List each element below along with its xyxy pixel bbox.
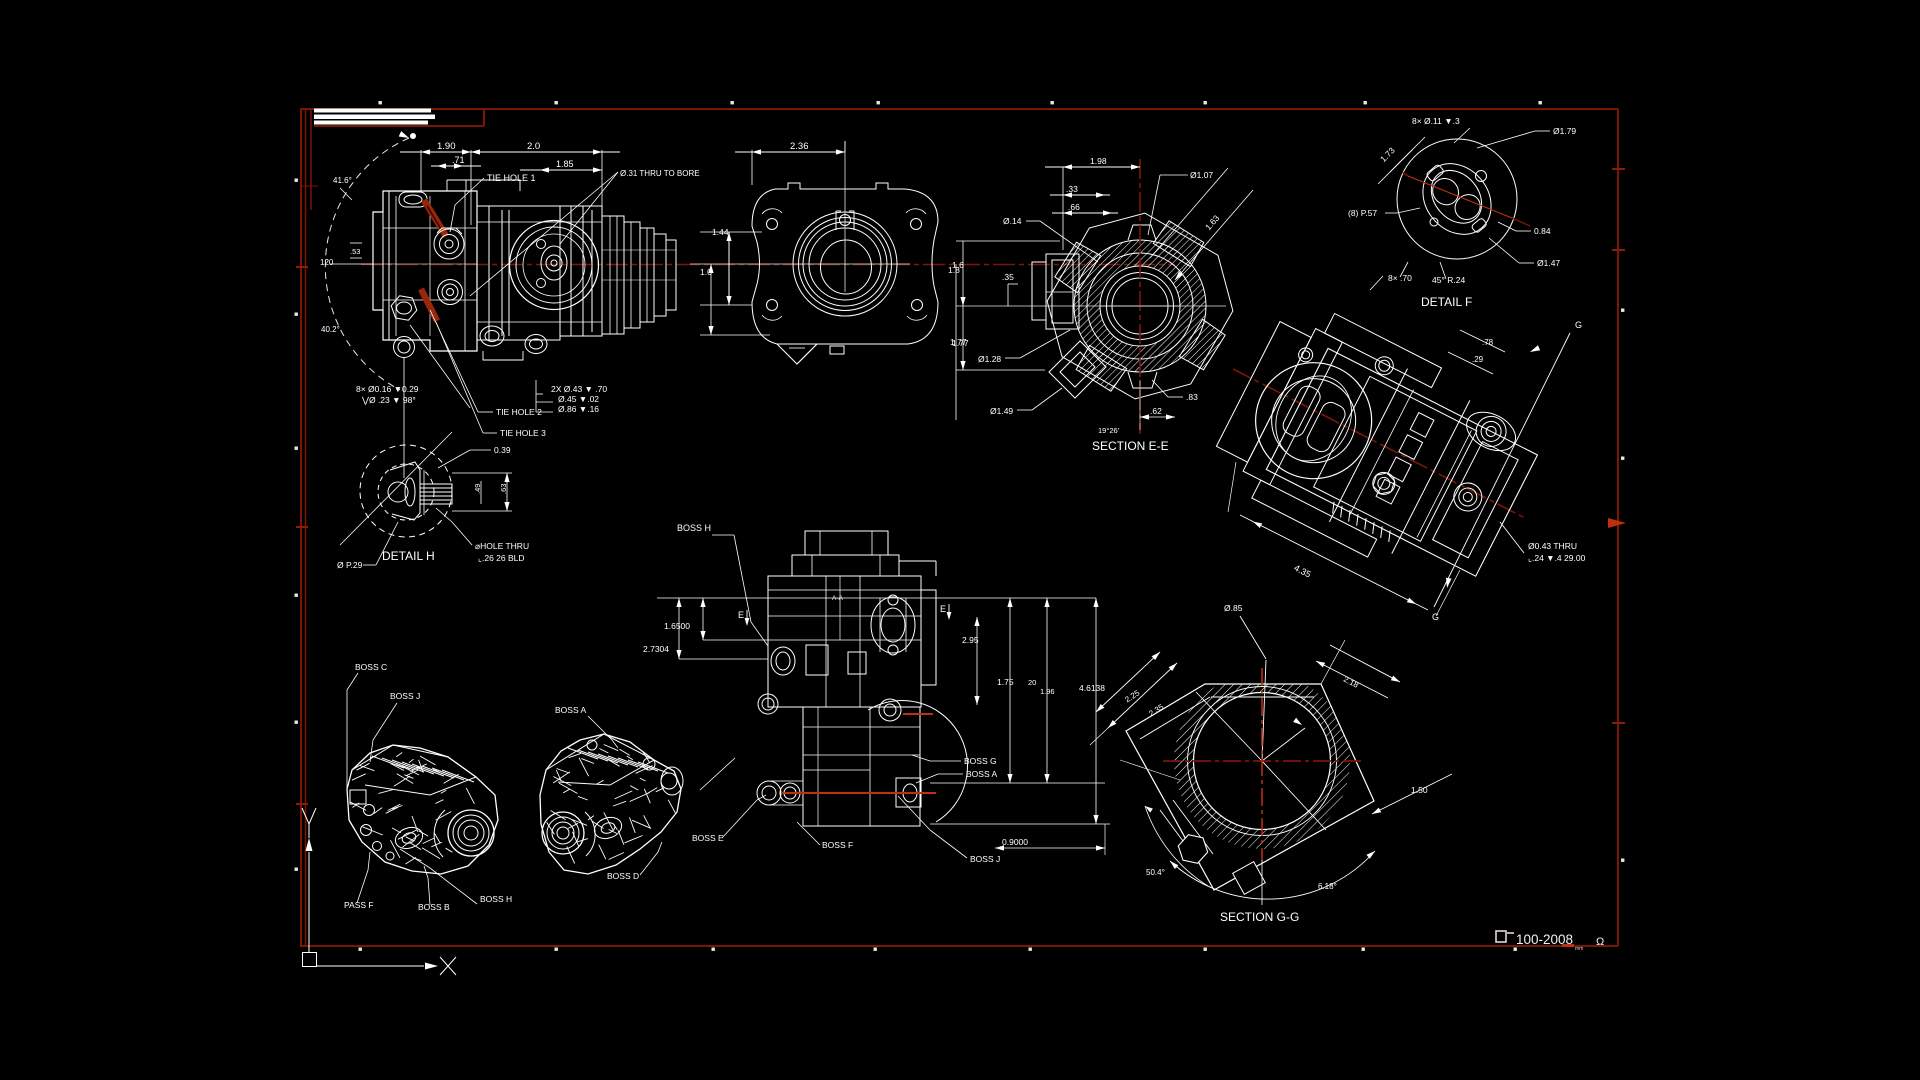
svg-text:Ø.31 THRU TO BORE: Ø.31 THRU TO BORE bbox=[620, 169, 700, 178]
svg-text:Ø.86 ▼.16: Ø.86 ▼.16 bbox=[558, 404, 599, 414]
svg-text:50.4°: 50.4° bbox=[1146, 868, 1165, 877]
svg-text:1.90: 1.90 bbox=[437, 141, 456, 152]
svg-text:.66: .66 bbox=[1068, 202, 1080, 212]
svg-text:.49: .49 bbox=[473, 484, 482, 494]
svg-text:.78: .78 bbox=[1482, 338, 1494, 347]
svg-text:A-A: A-A bbox=[832, 595, 844, 602]
svg-text:Ø1.49: Ø1.49 bbox=[990, 406, 1013, 416]
svg-text:4.6138: 4.6138 bbox=[1079, 683, 1105, 693]
svg-text:1.85: 1.85 bbox=[556, 159, 574, 169]
svg-text:Ø.85: Ø.85 bbox=[1224, 603, 1243, 613]
svg-text:2.95: 2.95 bbox=[962, 635, 979, 645]
svg-text:G: G bbox=[1575, 320, 1582, 330]
svg-text:BOSS G: BOSS G bbox=[964, 756, 997, 766]
svg-text:(8) P.57: (8) P.57 bbox=[1348, 208, 1377, 218]
svg-text:1.0: 1.0 bbox=[700, 267, 712, 277]
svg-text:BOSS F: BOSS F bbox=[822, 840, 853, 850]
svg-text:⋁Ø .23 ▼ 98°: ⋁Ø .23 ▼ 98° bbox=[361, 395, 416, 405]
svg-text:40.2°: 40.2° bbox=[321, 325, 340, 334]
svg-text:.35: .35 bbox=[1002, 272, 1014, 282]
svg-text:BOSS E: BOSS E bbox=[692, 833, 724, 843]
svg-text:8× Ø0.16 ▼0.29: 8× Ø0.16 ▼0.29 bbox=[356, 384, 419, 394]
svg-text:E: E bbox=[738, 610, 744, 620]
svg-text:Ø1.47: Ø1.47 bbox=[1537, 258, 1560, 268]
svg-text:0.39: 0.39 bbox=[494, 445, 511, 455]
svg-text:DETAIL H: DETAIL H bbox=[382, 549, 435, 563]
svg-text:BOSS H: BOSS H bbox=[480, 894, 512, 904]
svg-text:1.44: 1.44 bbox=[712, 227, 729, 237]
svg-text:.33: .33 bbox=[1066, 184, 1078, 194]
svg-text:BOSS J: BOSS J bbox=[970, 854, 1000, 864]
svg-text:E: E bbox=[940, 604, 946, 614]
svg-text:Ø0.43 THRU: Ø0.43 THRU bbox=[1528, 541, 1577, 551]
svg-text:BOSS D: BOSS D bbox=[607, 871, 639, 881]
svg-text:BOSS H: BOSS H bbox=[677, 523, 711, 533]
svg-text:Ø.45 ▼.02: Ø.45 ▼.02 bbox=[558, 394, 599, 404]
svg-text:.62: .62 bbox=[1150, 406, 1162, 416]
svg-text:Ø P.29: Ø P.29 bbox=[337, 560, 363, 570]
svg-text:Ø1.07: Ø1.07 bbox=[1190, 170, 1213, 180]
svg-text:.71: .71 bbox=[452, 155, 465, 165]
svg-text:.53: .53 bbox=[350, 247, 360, 256]
svg-text:TIE HOLE 3: TIE HOLE 3 bbox=[500, 428, 546, 438]
svg-text:BOSS A: BOSS A bbox=[555, 705, 587, 715]
svg-text:8× Ø.11 ▼.3: 8× Ø.11 ▼.3 bbox=[1412, 116, 1460, 126]
svg-text:2X Ø.43 ▼ .70: 2X Ø.43 ▼ .70 bbox=[551, 384, 607, 394]
svg-text:2.7304: 2.7304 bbox=[643, 644, 669, 654]
svg-text:Ω: Ω bbox=[1596, 936, 1604, 948]
svg-text:.63: .63 bbox=[499, 484, 508, 494]
svg-text:1.50: 1.50 bbox=[1411, 785, 1428, 795]
svg-text:DETAIL F: DETAIL F bbox=[1421, 295, 1472, 309]
svg-text:41.6°: 41.6° bbox=[333, 176, 352, 185]
svg-text:G: G bbox=[1432, 612, 1439, 622]
svg-text:TIE HOLE 1: TIE HOLE 1 bbox=[487, 173, 536, 183]
svg-text:mm: mm bbox=[1575, 946, 1583, 952]
svg-text:1.75: 1.75 bbox=[997, 677, 1014, 687]
svg-text:20: 20 bbox=[1028, 678, 1036, 687]
svg-text:SECTION G-G: SECTION G-G bbox=[1220, 910, 1299, 924]
svg-text:PASS F: PASS F bbox=[344, 900, 374, 910]
svg-text:Ø.14: Ø.14 bbox=[1003, 216, 1022, 226]
svg-text:1.6500: 1.6500 bbox=[664, 621, 690, 631]
svg-text:19°26': 19°26' bbox=[1098, 426, 1120, 435]
svg-text:1.77: 1.77 bbox=[952, 338, 969, 348]
svg-text:⌀HOLE THRU: ⌀HOLE THRU bbox=[475, 541, 529, 551]
svg-text:BOSS C: BOSS C bbox=[355, 662, 387, 672]
svg-text:8× .70: 8× .70 bbox=[1388, 273, 1412, 283]
svg-text:45° R.24: 45° R.24 bbox=[1432, 275, 1465, 285]
svg-text:SECTION E-E: SECTION E-E bbox=[1092, 439, 1169, 453]
svg-text:2.0: 2.0 bbox=[527, 141, 540, 152]
svg-text:Ø1.79: Ø1.79 bbox=[1553, 126, 1576, 136]
svg-text:1.6: 1.6 bbox=[952, 260, 964, 270]
svg-text:1.98: 1.98 bbox=[1090, 156, 1107, 166]
svg-text:BOSS A: BOSS A bbox=[966, 769, 998, 779]
svg-text:120: 120 bbox=[320, 258, 334, 267]
svg-text:6.18°: 6.18° bbox=[1318, 882, 1337, 891]
svg-text:0.9000: 0.9000 bbox=[1002, 837, 1028, 847]
svg-text:BOSS B: BOSS B bbox=[418, 902, 450, 912]
svg-text:TIE HOLE 2: TIE HOLE 2 bbox=[496, 407, 542, 417]
svg-text:⌞.24 ▼.4 29.00: ⌞.24 ▼.4 29.00 bbox=[1528, 553, 1586, 563]
svg-text:BOSS J: BOSS J bbox=[390, 691, 420, 701]
svg-text:2.36: 2.36 bbox=[790, 141, 809, 152]
svg-text:⌞.26 26 BLD: ⌞.26 26 BLD bbox=[478, 553, 525, 563]
svg-text:.83: .83 bbox=[1186, 392, 1198, 402]
svg-text:0.84: 0.84 bbox=[1534, 226, 1551, 236]
svg-text:.29: .29 bbox=[1472, 355, 1484, 364]
svg-text:1.96: 1.96 bbox=[1040, 687, 1055, 696]
svg-text:Ø1.28: Ø1.28 bbox=[978, 354, 1001, 364]
